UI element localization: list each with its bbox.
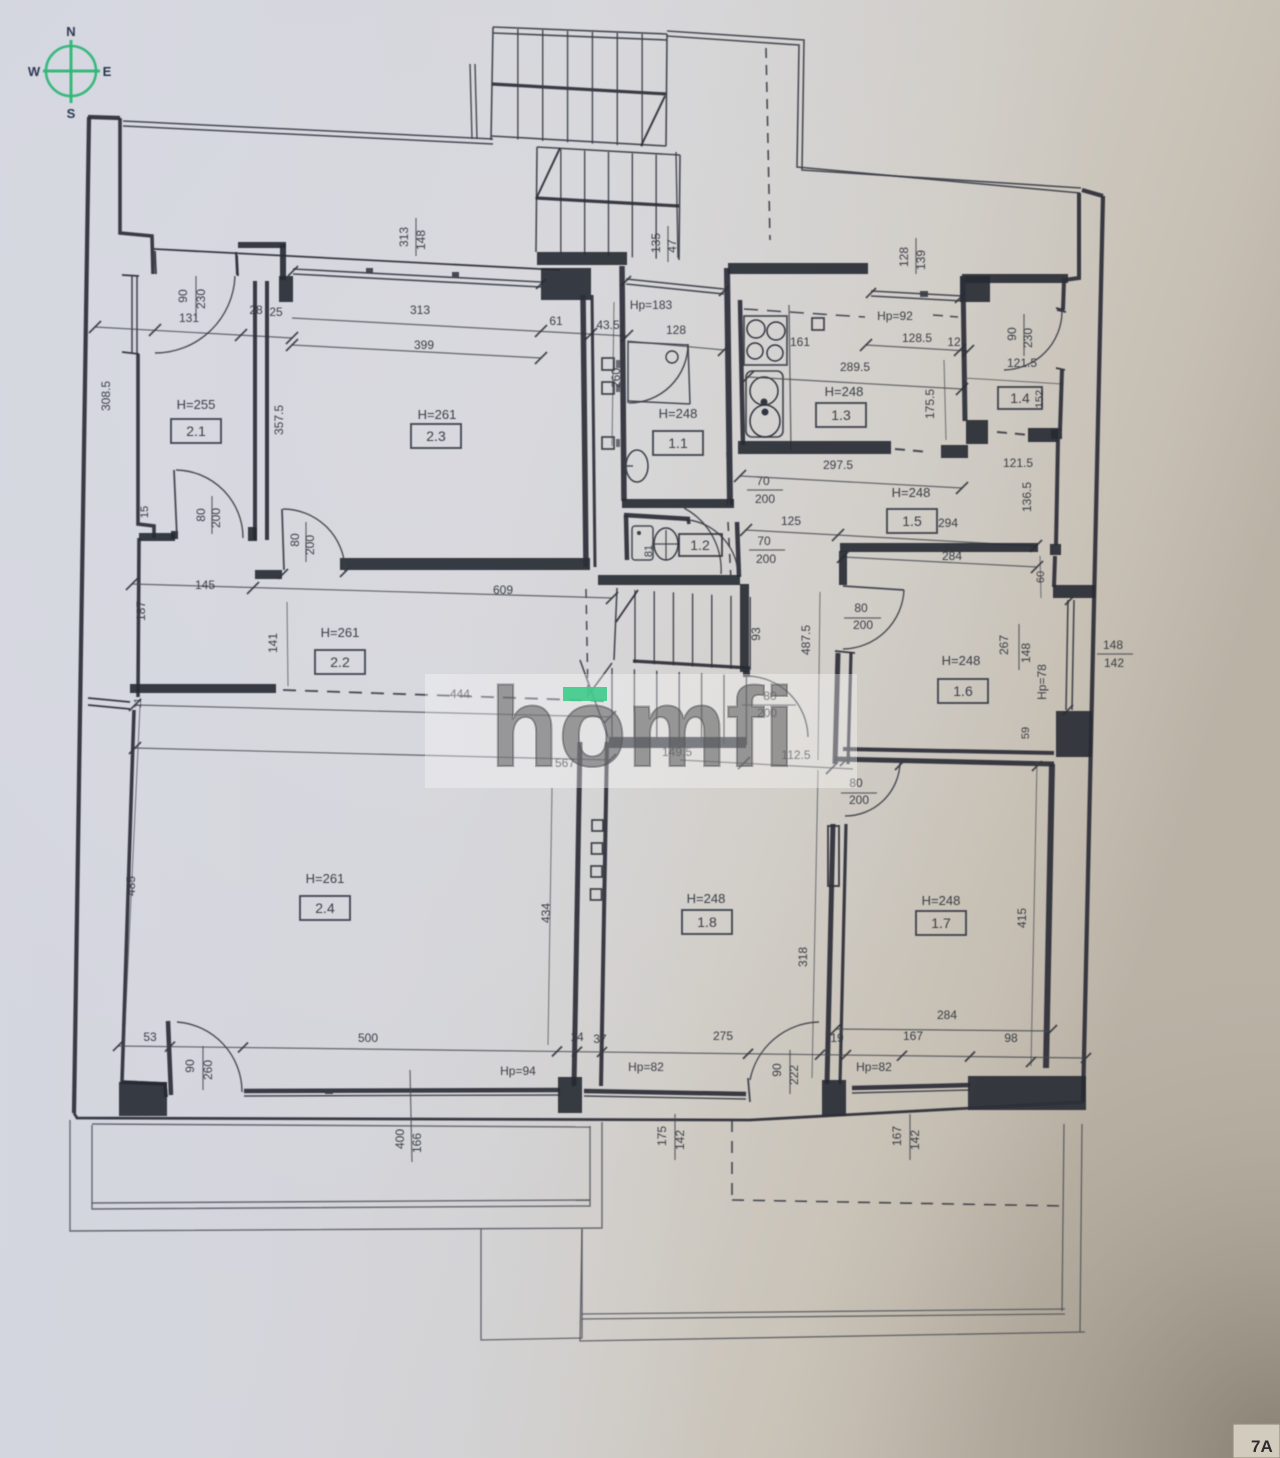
- svg-text:200: 200: [209, 508, 223, 528]
- svg-text:222: 222: [787, 1065, 801, 1085]
- svg-text:H=248: H=248: [922, 893, 961, 908]
- svg-text:167: 167: [903, 1029, 923, 1043]
- svg-text:487.5: 487.5: [799, 625, 813, 655]
- svg-text:284: 284: [942, 549, 962, 563]
- svg-text:H=255: H=255: [177, 397, 216, 412]
- svg-text:289.5: 289.5: [840, 360, 870, 374]
- svg-text:70: 70: [757, 534, 771, 548]
- svg-text:37: 37: [593, 1032, 607, 1046]
- svg-text:187: 187: [134, 601, 148, 621]
- svg-text:15: 15: [139, 506, 151, 518]
- svg-text:141: 141: [266, 633, 280, 653]
- svg-text:90: 90: [183, 1059, 197, 1073]
- svg-text:43.5: 43.5: [596, 318, 620, 332]
- svg-text:80: 80: [854, 601, 868, 615]
- svg-text:Hp=94: Hp=94: [500, 1064, 536, 1078]
- svg-text:1.3: 1.3: [831, 407, 851, 423]
- svg-text:25: 25: [269, 305, 283, 319]
- svg-text:275: 275: [713, 1029, 733, 1043]
- svg-text:148: 148: [1019, 643, 1033, 663]
- svg-text:Hp=78: Hp=78: [1035, 664, 1049, 700]
- svg-text:145: 145: [195, 578, 215, 592]
- svg-text:175.5: 175.5: [923, 389, 937, 419]
- svg-text:121.5: 121.5: [1003, 456, 1033, 470]
- svg-text:S: S: [67, 106, 76, 121]
- svg-text:148: 148: [1103, 638, 1123, 652]
- svg-text:H=261: H=261: [306, 871, 345, 886]
- svg-text:121.5: 121.5: [1007, 356, 1037, 370]
- svg-text:80: 80: [288, 533, 302, 547]
- svg-text:313: 313: [397, 227, 411, 247]
- svg-text:59: 59: [1020, 727, 1032, 739]
- svg-text:E: E: [103, 64, 112, 79]
- svg-text:Hp=82: Hp=82: [628, 1060, 664, 1074]
- svg-text:2.1: 2.1: [186, 423, 206, 439]
- svg-text:H=248: H=248: [942, 653, 981, 668]
- svg-text:128.5: 128.5: [902, 331, 932, 345]
- svg-text:500: 500: [358, 1031, 378, 1045]
- svg-text:125: 125: [781, 514, 801, 528]
- svg-text:284: 284: [937, 1008, 957, 1022]
- svg-text:7A: 7A: [1251, 1437, 1273, 1456]
- svg-text:93: 93: [749, 627, 763, 641]
- svg-text:267: 267: [997, 635, 1011, 655]
- svg-text:H=261: H=261: [321, 625, 360, 640]
- svg-text:90: 90: [770, 1063, 784, 1077]
- svg-text:2.3: 2.3: [426, 428, 446, 444]
- svg-text:297.5: 297.5: [823, 458, 853, 472]
- svg-text:308.5: 308.5: [99, 381, 113, 411]
- svg-text:313: 313: [410, 303, 430, 317]
- svg-text:200: 200: [755, 492, 775, 506]
- svg-text:1.7: 1.7: [931, 915, 951, 931]
- svg-text:2.2: 2.2: [330, 654, 350, 670]
- svg-text:1.4: 1.4: [1010, 390, 1030, 406]
- svg-text:1.1: 1.1: [668, 435, 688, 451]
- svg-text:N: N: [66, 24, 75, 39]
- svg-text:128: 128: [666, 323, 686, 337]
- svg-text:2.4: 2.4: [315, 900, 335, 916]
- svg-text:Hp=82: Hp=82: [856, 1060, 892, 1074]
- svg-text:80: 80: [194, 508, 208, 522]
- svg-text:167: 167: [890, 1126, 904, 1146]
- svg-text:H=248: H=248: [892, 485, 931, 500]
- svg-text:200: 200: [756, 552, 776, 566]
- svg-text:81: 81: [643, 545, 655, 557]
- svg-text:230: 230: [1021, 328, 1035, 348]
- svg-text:135: 135: [649, 233, 663, 253]
- svg-text:70: 70: [756, 474, 770, 488]
- svg-text:61: 61: [549, 314, 563, 328]
- svg-text:131: 131: [179, 311, 199, 325]
- svg-text:1.5: 1.5: [902, 513, 922, 529]
- svg-text:260: 260: [609, 368, 623, 388]
- svg-text:90: 90: [176, 289, 190, 303]
- svg-text:609: 609: [493, 583, 513, 597]
- svg-text:400: 400: [393, 1129, 407, 1149]
- svg-text:14: 14: [570, 1030, 584, 1044]
- svg-text:W: W: [28, 64, 41, 79]
- svg-text:98: 98: [1004, 1031, 1018, 1045]
- svg-text:200: 200: [853, 618, 873, 632]
- svg-text:47: 47: [665, 239, 679, 253]
- svg-text:200: 200: [849, 793, 869, 807]
- svg-text:161: 161: [790, 335, 810, 349]
- svg-text:399: 399: [414, 338, 434, 352]
- svg-text:136.5: 136.5: [1020, 482, 1034, 512]
- svg-text:H=248: H=248: [687, 891, 726, 906]
- svg-text:12: 12: [947, 335, 961, 349]
- svg-text:128: 128: [897, 247, 911, 267]
- svg-text:415: 415: [1015, 908, 1029, 928]
- svg-text:1.8: 1.8: [697, 914, 717, 930]
- svg-text:H=248: H=248: [659, 406, 698, 421]
- svg-text:1.6: 1.6: [953, 683, 973, 699]
- svg-text:294: 294: [938, 516, 958, 530]
- svg-text:200: 200: [303, 535, 317, 555]
- svg-text:318: 318: [796, 947, 810, 967]
- svg-text:H=248: H=248: [825, 384, 864, 399]
- svg-text:152: 152: [1034, 390, 1046, 408]
- svg-text:357.5: 357.5: [272, 405, 286, 435]
- svg-text:142: 142: [1104, 656, 1124, 670]
- svg-text:homfi: homfi: [490, 665, 795, 790]
- svg-text:434: 434: [539, 903, 553, 923]
- svg-text:H=261: H=261: [418, 407, 457, 422]
- svg-text:1.2: 1.2: [690, 537, 710, 553]
- svg-text:Hp=183: Hp=183: [630, 298, 673, 312]
- svg-text:175: 175: [655, 1126, 669, 1146]
- svg-text:53: 53: [143, 1030, 157, 1044]
- svg-text:90: 90: [1005, 327, 1019, 341]
- svg-text:Hp=92: Hp=92: [877, 309, 913, 323]
